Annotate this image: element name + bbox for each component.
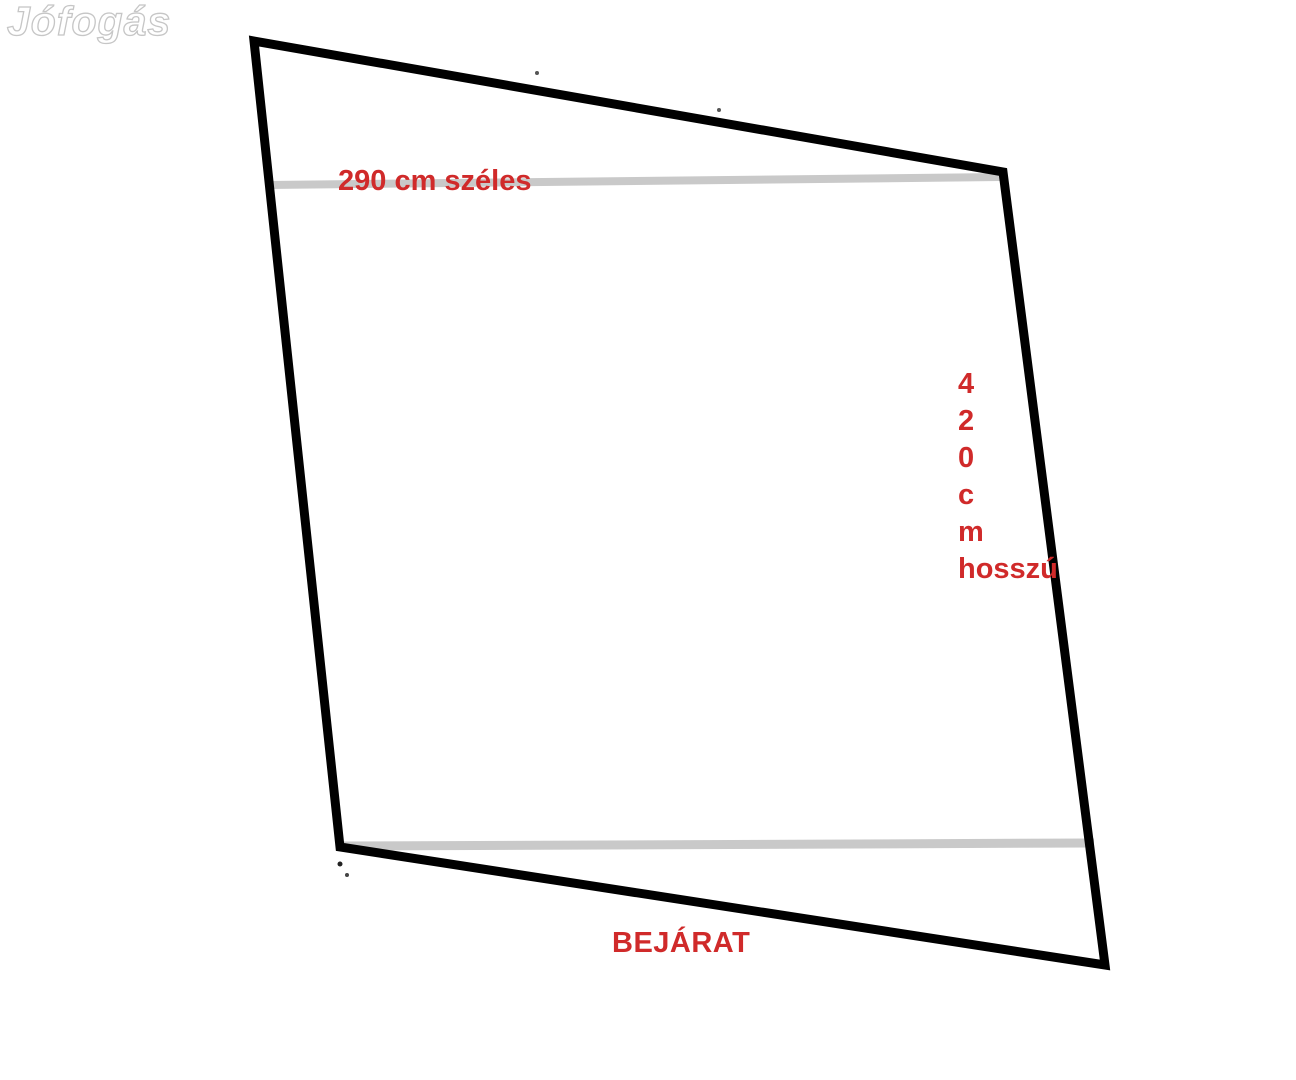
width-dimension-label: 290 cm széles	[338, 165, 531, 198]
ink-speck	[717, 108, 721, 112]
length-char-2: 2	[958, 403, 1058, 440]
bottom-measure-line	[341, 843, 1094, 846]
length-char-m: m	[958, 514, 1058, 551]
length-dimension-label: 4 2 0 c m hosszú	[958, 366, 1058, 588]
room-outline-drawing	[0, 0, 1296, 1080]
length-char-c: c	[958, 477, 1058, 514]
ink-speck	[338, 862, 343, 867]
entrance-label: BEJÁRAT	[612, 927, 750, 960]
ink-speck	[345, 873, 349, 877]
length-char-0: 0	[958, 440, 1058, 477]
floor-plan-canvas: Jófogás 290 cm széles 4 2 0 c m hosszú B…	[0, 0, 1296, 1080]
ink-speck	[535, 71, 539, 75]
length-char-4: 4	[958, 366, 1058, 403]
length-word-hosszu: hosszú	[958, 551, 1058, 588]
